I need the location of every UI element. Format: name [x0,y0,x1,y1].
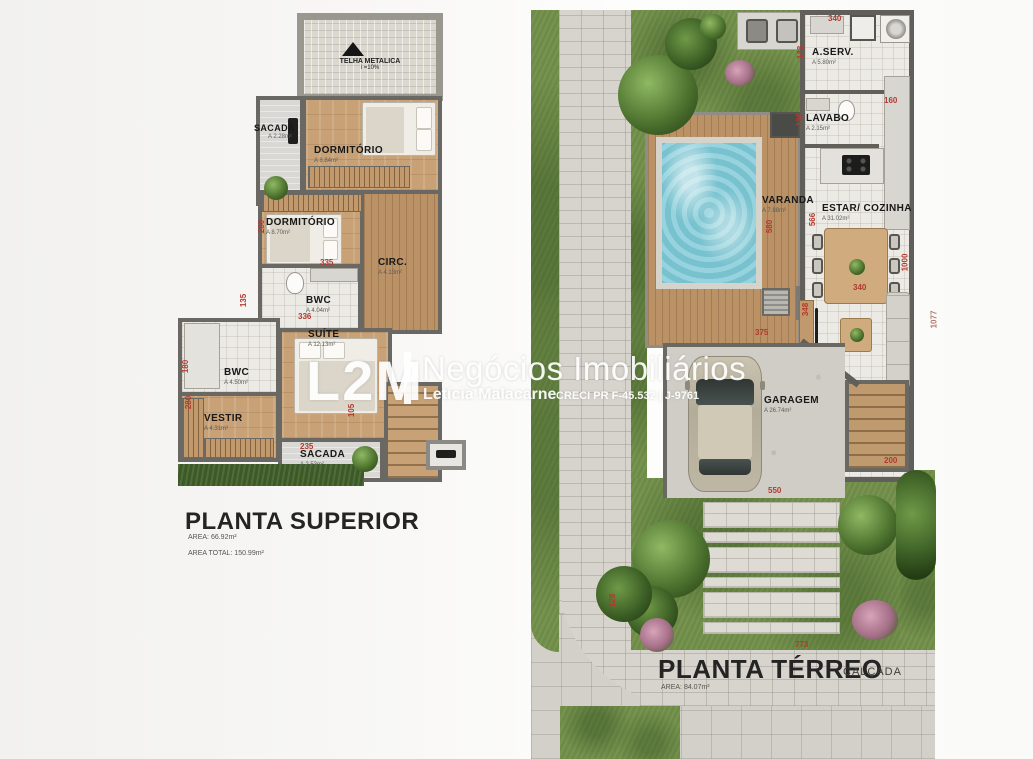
walkway-slab [703,502,840,528]
grill-icon [746,19,768,43]
room-name: GARAGEM [764,396,819,407]
corner-shrub [596,566,652,622]
bbq-counter [737,12,807,50]
walkway-slab [703,592,840,618]
closet-vestir-bottom [204,438,274,458]
room-area: A 2.28m² [254,134,306,140]
walkway-slab [703,547,840,573]
dining-table [824,228,888,304]
room-name: VESTIR [204,414,243,425]
roof-area [297,13,443,101]
cooktop-icon [842,155,870,175]
room-area: A 12.13m² [308,342,339,348]
label-dormitorio-1: DORMITÓRIO A 8.84m² [314,146,383,164]
car-mirror-right [760,381,765,390]
room-area: A 7.88m² [762,208,814,214]
room-area: A 8.70m² [266,230,335,236]
plant-sacada-top [264,176,288,200]
chair-icon [812,258,823,274]
room-name: DORMITÓRIO [314,146,383,157]
room-area: A 4.31m² [204,426,243,432]
label-sacada-top: SACADA A 2.28m² [254,124,306,140]
dimension: 335 [320,258,333,267]
dimension: 200 [884,456,897,465]
room-name: LAVABO [806,114,849,125]
room-area: A 2.53m² [300,462,345,468]
louver-box [762,288,790,316]
roof-label-text: TELHA METALICA [312,58,428,65]
label-estar-cozinha: ESTAR/ COZINHA A 31.02m² [822,204,912,222]
ground-staircase [845,380,909,472]
room-name: VARANDA [762,196,814,207]
dimension: 336 [298,312,311,321]
label-bwc-1: BWC A 4.04m² [306,296,331,314]
dimension: 128 [608,594,617,607]
floor-plan-sheet: TELHA METALICA i =10% SACADA A 2.28m² [0,0,1033,759]
street-lawn-strip [531,10,559,652]
dimension: 180 [181,360,190,373]
walkway-slab [703,622,840,634]
dimension: 1000 [900,254,909,272]
swimming-pool [656,137,762,289]
chair-icon [812,282,823,298]
flower-bush [852,600,898,640]
dimension: 550 [768,486,781,495]
bwc2-shower [184,323,220,389]
upper-plan-title: PLANTA SUPERIOR [185,508,419,536]
dimension: 235 [300,442,313,451]
car-roof [698,405,752,459]
label-bwc-2: BWC A 4.50m² [224,368,249,386]
room-name: SACADA [254,124,306,133]
room-name: CIRC. [378,258,407,269]
room-area: A 26.74m² [764,408,819,414]
palm-tree [838,495,898,555]
dimension: 348 [801,303,810,316]
room-area: A 4.13m² [378,270,407,276]
upper-plan-area-total: AREA TOTAL: 150.99m² [188,550,264,557]
dimension: 1077 [929,311,938,329]
room-area: A 5.80m² [812,60,854,66]
label-sacada-bottom: SACADA A 2.53m² [300,450,345,468]
dimension: 566 [808,213,817,226]
dimension: 160 [884,96,897,105]
chair-icon [889,258,900,274]
roof-slope-icon [342,42,364,56]
room-name: SUÍTE [308,330,339,341]
shrub [700,14,726,40]
room-name: DORMITÓRIO [266,218,335,229]
label-dormitorio-2: DORMITÓRIO A 8.70m² [266,218,335,236]
label-lavabo: LAVABO A 2.15m² [806,114,849,132]
hedge [896,470,936,580]
closet-dormitorio-1 [308,166,410,188]
flower-bush [725,60,755,86]
car-rear-window [699,459,751,475]
coffee-table-plant [850,328,864,342]
dimension: 280 [184,396,193,409]
dimension: 340 [853,283,866,292]
stair-door-icon [436,450,456,458]
room-area: A 31.02m² [822,216,912,222]
room-area: A 4.50m² [224,380,249,386]
lavabo-sink [806,98,830,111]
washing-machine-icon [880,15,910,43]
room-area: A 2.15m² [806,126,849,132]
upper-plan-area: AREA: 66.92m² [188,534,237,541]
dimension: 148 [796,46,805,59]
dimension: 280 [257,220,266,233]
sidewalk-label: CALÇADA [843,666,902,678]
room-name: BWC [306,296,331,307]
watermark-brand: Negócios Imobiliários [422,350,746,388]
room-name: SACADA [300,450,345,461]
washer-icon [850,15,876,41]
label-suite: SUÍTE A 12.13m² [308,330,339,348]
ground-plan-area: AREA: 84.07m² [661,684,710,691]
walkway-slab [703,577,840,588]
dimension: 340 [828,14,841,23]
chair-icon [812,234,823,250]
wall-aserv [803,90,885,94]
sink-icon [776,19,798,43]
roof-slope-text: i =10% [312,65,428,71]
corner-lawn [560,706,680,759]
watermark-creci: CRECI PR F-45.532 | J-9761 [556,390,699,402]
room-name: BWC [224,368,249,379]
label-garagem: GARAGEM A 26.74m² [764,396,819,414]
dimension: 130 [795,113,804,126]
dimension: 375 [755,328,768,337]
sofa [886,292,910,388]
dimension: 135 [239,294,248,307]
label-vestir: VESTIR A 4.31m² [204,414,243,432]
room-name: A.SERV. [812,48,854,59]
walkway-slab [703,532,840,543]
roof-label: TELHA METALICA i =10% [312,58,428,71]
label-circulacao: CIRC. A 4.13m² [378,258,407,276]
label-aserv: A.SERV. A 5.80m² [812,48,854,66]
table-plant [849,259,865,275]
room-name: ESTAR/ COZINHA [822,204,912,215]
plant-sacada-bottom [352,446,378,472]
dimension: 580 [765,220,774,233]
dimension: 773 [795,640,808,649]
room-area: A 8.84m² [314,158,383,164]
chair-icon [889,234,900,250]
label-varanda: VARANDA A 7.88m² [762,196,814,214]
watermark-divider [404,352,411,404]
bwc1-toilet-icon [286,272,304,294]
flower-bush [640,618,674,652]
watermark-agent: Letícia Malacarne [423,386,556,404]
bwc1-vanity [310,268,358,282]
